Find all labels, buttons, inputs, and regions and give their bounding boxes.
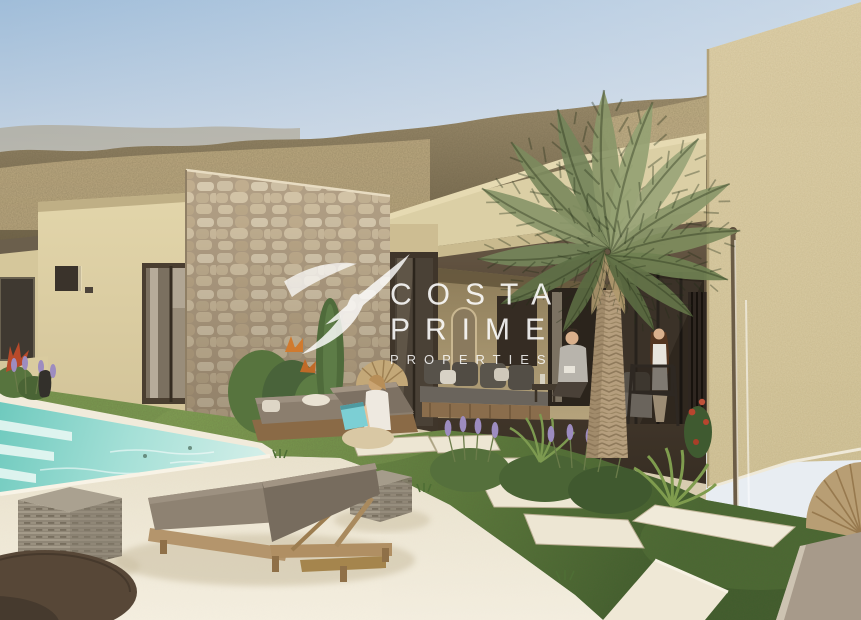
daybed-pillow	[262, 400, 280, 412]
rolled-towel	[302, 394, 330, 406]
arch-mirror	[452, 308, 476, 370]
villa-exterior-render: COSTA PRIME PROPERTIES	[0, 0, 861, 620]
right-privacy-wall	[700, 0, 861, 512]
accent-pillow	[494, 368, 509, 381]
small-window	[55, 266, 81, 291]
book	[564, 366, 575, 373]
dark-vase	[39, 370, 52, 398]
wicker-dome-lounger	[806, 462, 861, 538]
wall-lamp	[85, 287, 93, 293]
terrace-window	[497, 296, 537, 366]
crossed-legs	[342, 427, 394, 449]
accent-pillow	[440, 370, 456, 384]
